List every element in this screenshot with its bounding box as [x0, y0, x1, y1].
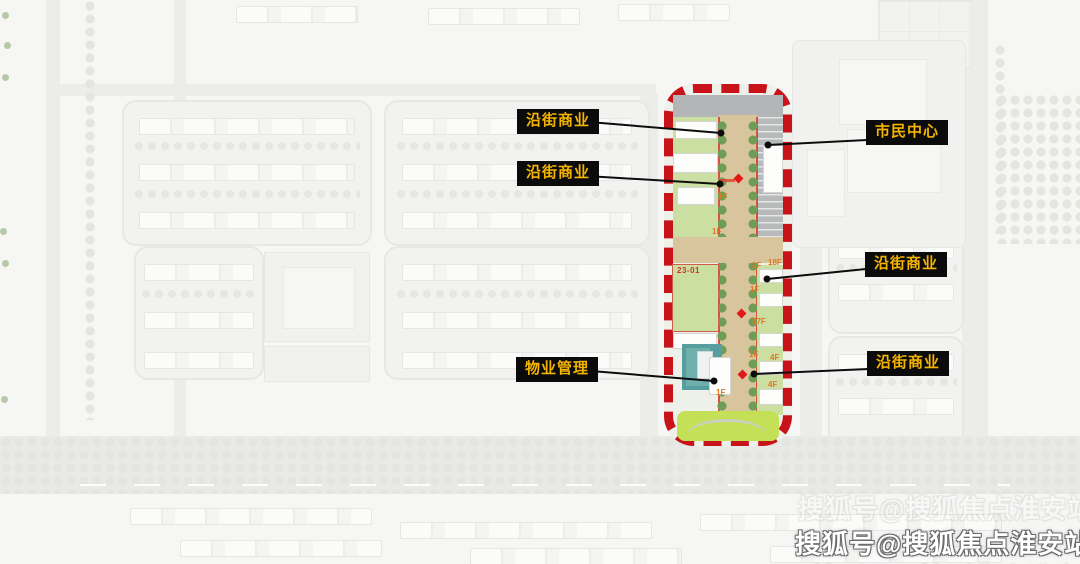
leader-line [767, 269, 866, 279]
leader-line [589, 122, 721, 133]
leader-dot [711, 378, 718, 385]
siteplan-image: 23-01 1F 1F 2F 18F 1F 17F 1F 4F 4F 1F 沿街… [0, 0, 1080, 564]
leader-lines-layer [0, 0, 1080, 564]
leader-dot [717, 181, 724, 188]
leader-line [768, 140, 867, 145]
callout-shop-right-upper: 沿街商业 [865, 252, 947, 277]
leader-dot [764, 276, 771, 283]
leader-dot [765, 142, 772, 149]
callout-shop-top-2: 沿街商业 [517, 161, 599, 186]
callout-shop-right-lower: 沿街商业 [867, 351, 949, 376]
callout-civic-center: 市民中心 [866, 120, 948, 145]
callout-property-management: 物业管理 [516, 357, 598, 382]
leader-line [754, 369, 868, 374]
watermark: 搜狐号@搜狐焦点淮安站 [795, 524, 1080, 561]
watermark-ghost: 搜狐号@搜狐焦点淮安站 [812, 558, 1080, 564]
watermark-ghost: 搜狐号@搜狐焦点淮安站 [798, 489, 1080, 526]
leader-dot [751, 371, 758, 378]
callout-shop-top-1: 沿街商业 [517, 109, 599, 134]
leader-dot [718, 130, 725, 137]
leader-line [591, 371, 714, 381]
leader-line [586, 176, 720, 184]
